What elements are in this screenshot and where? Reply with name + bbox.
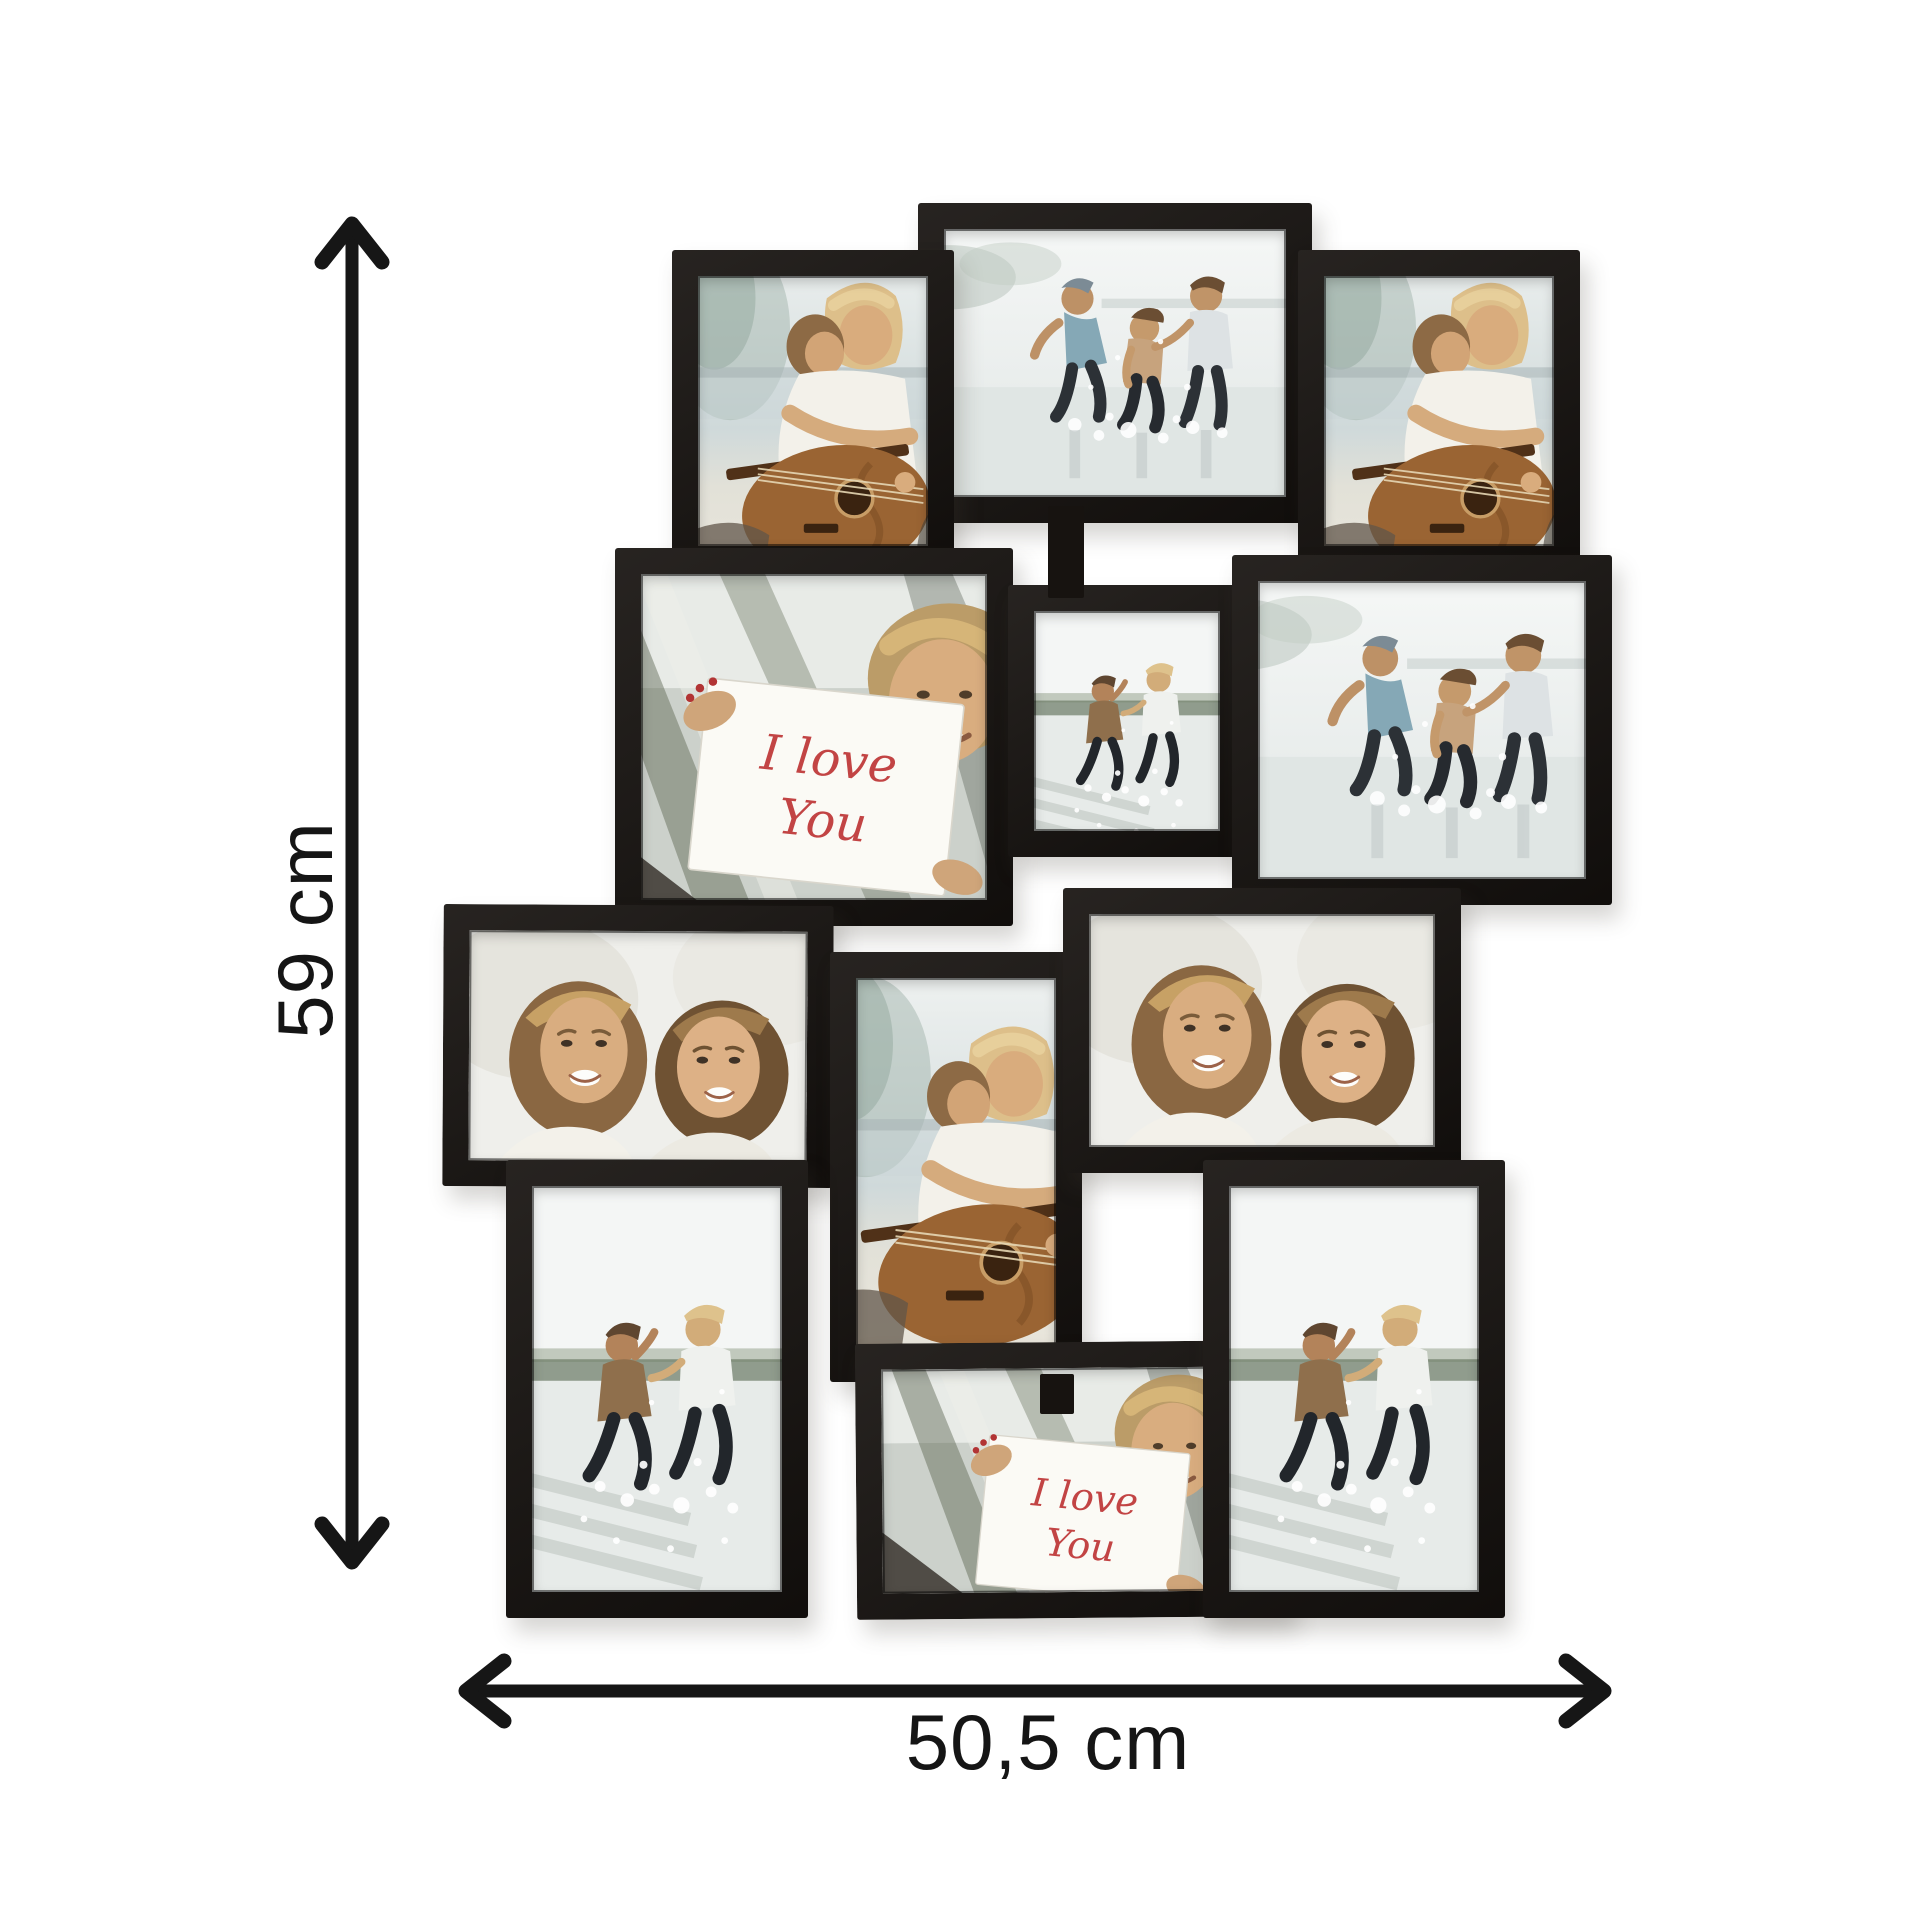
frame-connector-2 — [1040, 1374, 1074, 1414]
photo-frame-1-beach3 — [918, 203, 1312, 523]
photo-frame-2-guitar — [672, 250, 954, 572]
photo-beach3 — [944, 229, 1286, 497]
photo-frame-12-running2 — [1203, 1160, 1505, 1618]
photo-frame-4-loveyou — [615, 548, 1013, 926]
photo-running2 — [1229, 1186, 1479, 1592]
photo-frame-3-guitar — [1298, 250, 1580, 572]
frame-connector-1 — [1048, 506, 1084, 598]
photo-guitar — [698, 276, 928, 546]
photo-frame-5-running2 — [1008, 585, 1246, 857]
product-dimension-image: 59 cm 50,5 cm — [0, 0, 1920, 1919]
photo-running2 — [1034, 611, 1220, 831]
photo-running2 — [532, 1186, 782, 1592]
photo-blondes2 — [1089, 914, 1435, 1147]
collage-frame-product — [0, 0, 1920, 1919]
photo-beach3 — [1258, 581, 1586, 879]
photo-frame-9-blondes2 — [1063, 888, 1461, 1173]
photo-frame-8-guitar — [830, 952, 1082, 1382]
photo-loveyou — [641, 574, 987, 900]
photo-guitar — [1324, 276, 1554, 546]
photo-frame-10-running2 — [506, 1160, 808, 1618]
photo-frame-6-beach3 — [1232, 555, 1612, 905]
photo-guitar — [856, 978, 1056, 1356]
photo-frame-7-blondes2 — [442, 904, 833, 1188]
photo-blondes2 — [468, 930, 807, 1162]
